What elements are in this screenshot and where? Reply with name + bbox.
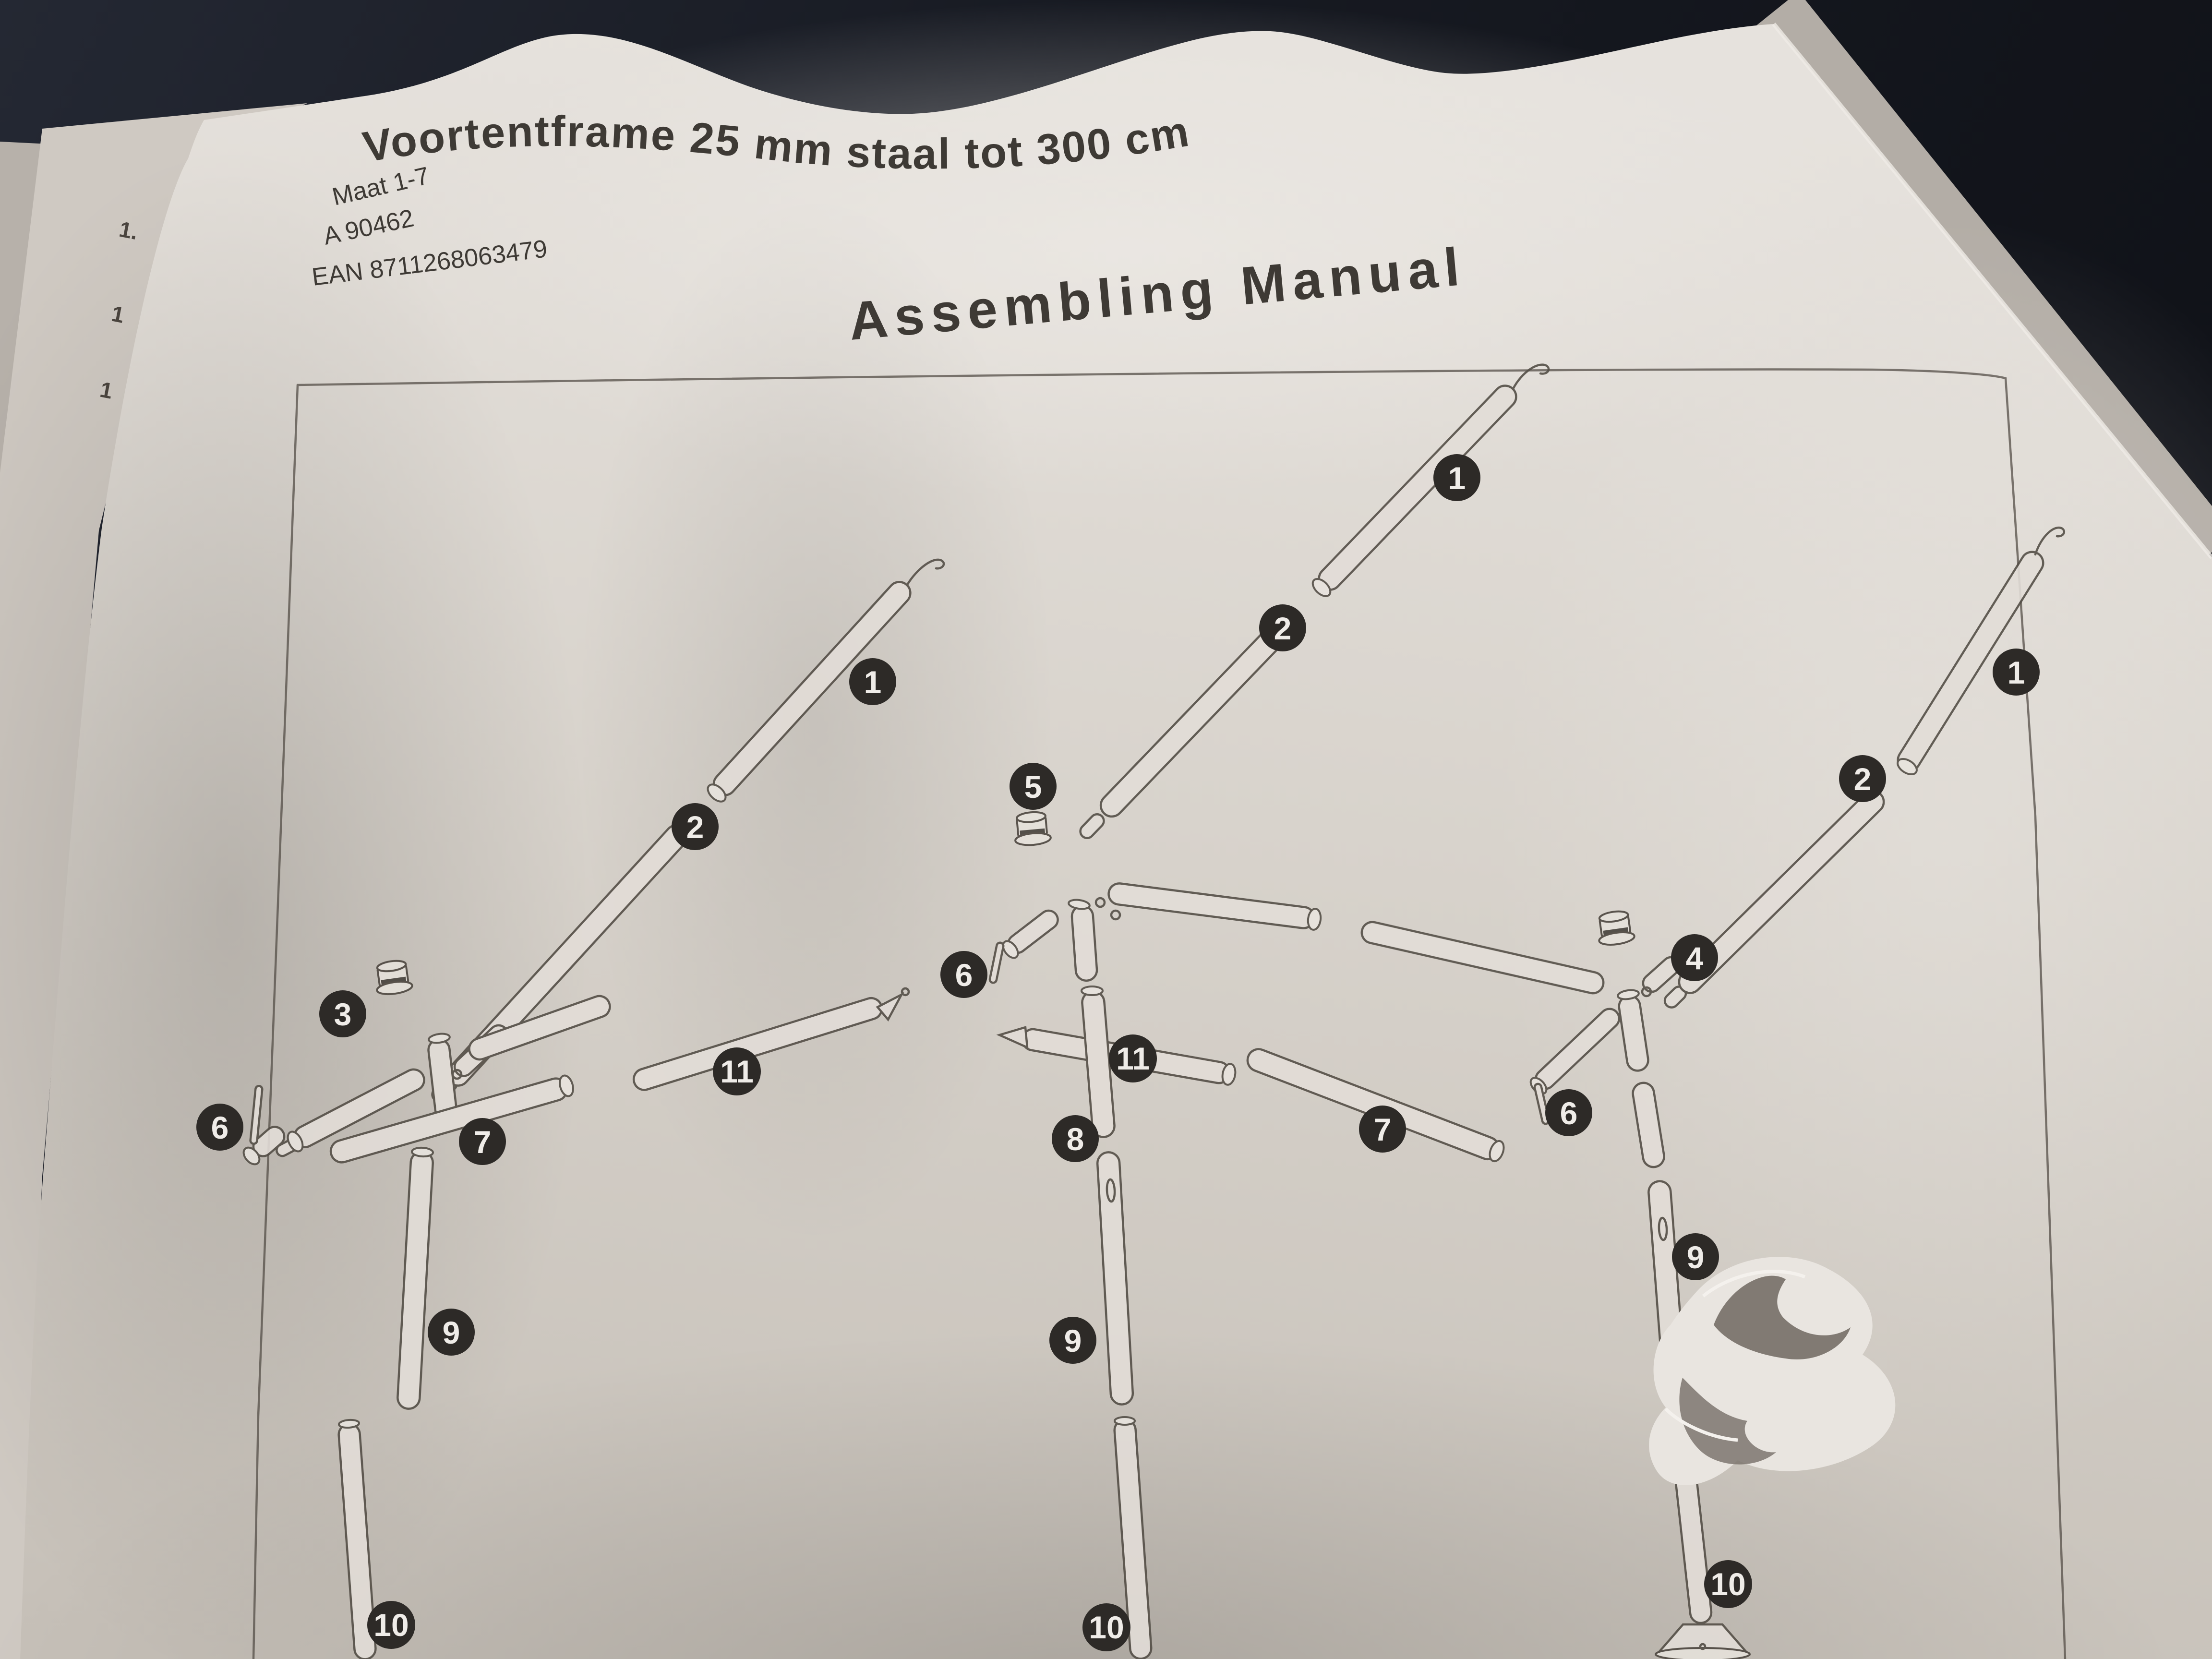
badge-2-center: 2 <box>1259 604 1306 651</box>
badge-4: 4 <box>1671 934 1718 981</box>
badge-1-right: 1 <box>1993 649 2040 696</box>
svg-text:9: 9 <box>1064 1323 1082 1358</box>
svg-text:10: 10 <box>1710 1566 1745 1602</box>
svg-text:5: 5 <box>1024 769 1042 805</box>
badge-6-center: 6 <box>940 951 987 998</box>
svg-text:1: 1 <box>864 664 882 700</box>
badge-3: 3 <box>319 990 366 1037</box>
svg-text:1: 1 <box>1448 460 1466 496</box>
svg-text:1: 1 <box>2008 655 2025 690</box>
svg-text:4: 4 <box>1686 940 1704 976</box>
badge-10-left: 10 <box>367 1601 415 1649</box>
svg-text:7: 7 <box>1374 1112 1392 1147</box>
svg-text:2: 2 <box>1274 611 1292 646</box>
badge-8: 8 <box>1052 1115 1099 1162</box>
badge-9-center: 9 <box>1049 1317 1096 1364</box>
svg-text:11: 11 <box>1116 1041 1150 1076</box>
badge-11-left: 11 <box>713 1047 761 1095</box>
badge-6-left: 6 <box>196 1104 243 1151</box>
svg-text:10: 10 <box>1089 1610 1124 1645</box>
svg-text:2: 2 <box>686 809 704 845</box>
cap-center <box>1013 811 1051 846</box>
badge-1-left: 1 <box>849 658 896 705</box>
badge-10-center: 10 <box>1082 1603 1130 1651</box>
badge-7-right: 7 <box>1359 1106 1406 1153</box>
badge-5: 5 <box>1010 763 1057 810</box>
svg-text:3: 3 <box>334 997 352 1032</box>
svg-text:6: 6 <box>955 957 973 993</box>
badge-9-left: 9 <box>428 1309 475 1356</box>
svg-text:10: 10 <box>373 1607 409 1643</box>
badge-7-left: 7 <box>459 1118 506 1165</box>
badge-10-right: 10 <box>1704 1560 1752 1608</box>
svg-text:2: 2 <box>1854 761 1872 797</box>
svg-text:7: 7 <box>474 1124 492 1160</box>
svg-text:11: 11 <box>720 1054 754 1089</box>
badge-2-right: 2 <box>1839 755 1886 802</box>
svg-text:8: 8 <box>1067 1121 1084 1157</box>
svg-text:6: 6 <box>211 1110 229 1145</box>
svg-text:9: 9 <box>1687 1239 1705 1275</box>
badge-2-left: 2 <box>672 803 719 850</box>
badge-9-right: 9 <box>1672 1233 1719 1280</box>
badge-11-center: 11 <box>1109 1034 1157 1082</box>
photo-of-assembly-manual: 1. 1 1 <box>0 0 2212 1659</box>
svg-text:6: 6 <box>1560 1095 1578 1131</box>
badge-6-right: 6 <box>1545 1089 1592 1136</box>
svg-text:9: 9 <box>443 1315 460 1350</box>
badge-1-center: 1 <box>1433 454 1480 501</box>
